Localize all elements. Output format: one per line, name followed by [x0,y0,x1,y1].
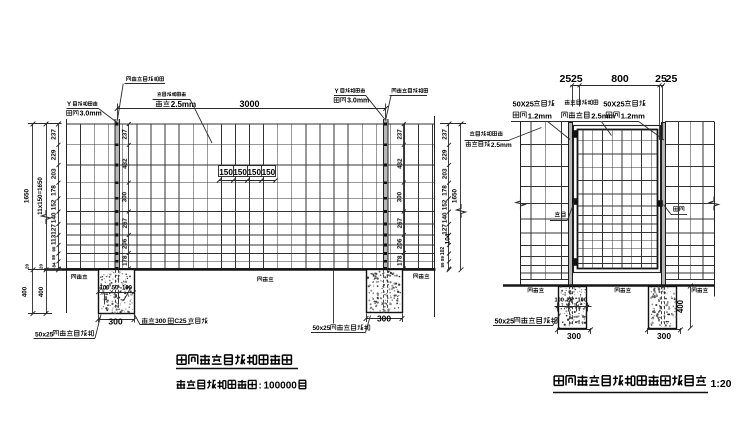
svg-text:50x25: 50x25 [313,325,331,332]
svg-text:206: 206 [122,238,129,249]
svg-text:1.2mm: 1.2mm [621,112,645,121]
svg-text:800: 800 [611,73,629,85]
svg-text:432: 432 [122,158,129,169]
svg-text:300: 300 [108,317,123,327]
svg-text:237: 237 [51,129,58,140]
svg-text:1650: 1650 [24,188,31,203]
svg-text:100000: 100000 [264,380,298,391]
svg-text:25: 25 [560,73,572,85]
svg-text:25: 25 [666,73,678,85]
svg-text:300: 300 [122,191,129,202]
svg-text:11x150=1650: 11x150=1650 [37,177,44,215]
svg-text:152: 152 [51,199,58,210]
svg-text:300: 300 [377,314,391,324]
svg-text:178: 178 [442,185,449,196]
svg-text:150: 150 [262,168,276,177]
svg-text:50x25: 50x25 [495,319,515,326]
svg-text:140: 140 [51,212,58,223]
svg-text:3000: 3000 [239,99,259,109]
svg-text:25: 25 [567,298,573,304]
svg-text:3.0mm: 3.0mm [80,111,102,118]
svg-text:127: 127 [442,224,449,235]
svg-text:150: 150 [233,168,247,177]
svg-text:25: 25 [571,73,583,85]
svg-text:1.2mm: 1.2mm [528,112,552,121]
svg-text:432: 432 [397,158,404,169]
svg-text:89: 89 [440,262,445,267]
svg-text:100: 100 [578,298,587,304]
svg-text:400: 400 [676,299,685,313]
svg-text:237: 237 [397,129,404,140]
svg-text:98: 98 [51,246,56,252]
svg-text:229: 229 [442,149,449,160]
svg-text:400: 400 [38,286,45,297]
svg-text:20: 20 [39,264,45,270]
svg-text:267: 267 [397,217,404,228]
svg-text:300: 300 [567,331,581,341]
svg-text:100: 100 [555,298,564,304]
svg-text:206: 206 [397,238,404,249]
svg-text:104: 104 [445,233,452,244]
svg-text:100: 100 [99,286,110,292]
svg-text:1650: 1650 [452,188,459,203]
svg-text:150: 150 [247,168,261,177]
svg-text:237: 237 [442,129,449,140]
svg-text:300: 300 [657,331,671,341]
svg-text:267: 267 [122,217,129,228]
svg-text:1:20: 1:20 [711,378,732,390]
svg-text:178: 178 [122,255,129,266]
svg-text:237: 237 [122,129,129,140]
svg-text:2.5mm: 2.5mm [491,142,512,149]
svg-text:102: 102 [440,247,446,256]
svg-text:3.0mm: 3.0mm [347,98,369,105]
svg-text:84: 84 [51,262,56,268]
svg-text:127: 127 [51,224,58,235]
svg-text:20: 20 [25,264,31,270]
svg-text:152: 152 [442,199,449,210]
svg-text:50X25: 50X25 [603,100,624,109]
svg-text:178: 178 [51,185,58,196]
svg-text:400: 400 [22,286,29,297]
svg-text:203: 203 [51,168,58,179]
svg-text:50X25: 50X25 [513,100,534,109]
svg-text:50: 50 [112,286,119,292]
svg-text:50x25: 50x25 [35,331,54,338]
svg-text:113: 113 [51,234,58,245]
svg-text:100: 100 [122,286,133,292]
svg-text:229: 229 [51,149,58,160]
svg-text:203: 203 [442,168,449,179]
svg-text:300: 300 [397,191,404,202]
svg-text:140: 140 [442,212,449,223]
svg-text::: : [259,380,262,391]
svg-text:178: 178 [397,255,404,266]
svg-text:89: 89 [51,254,56,260]
svg-text:89: 89 [440,256,445,261]
svg-text:150: 150 [219,168,233,177]
